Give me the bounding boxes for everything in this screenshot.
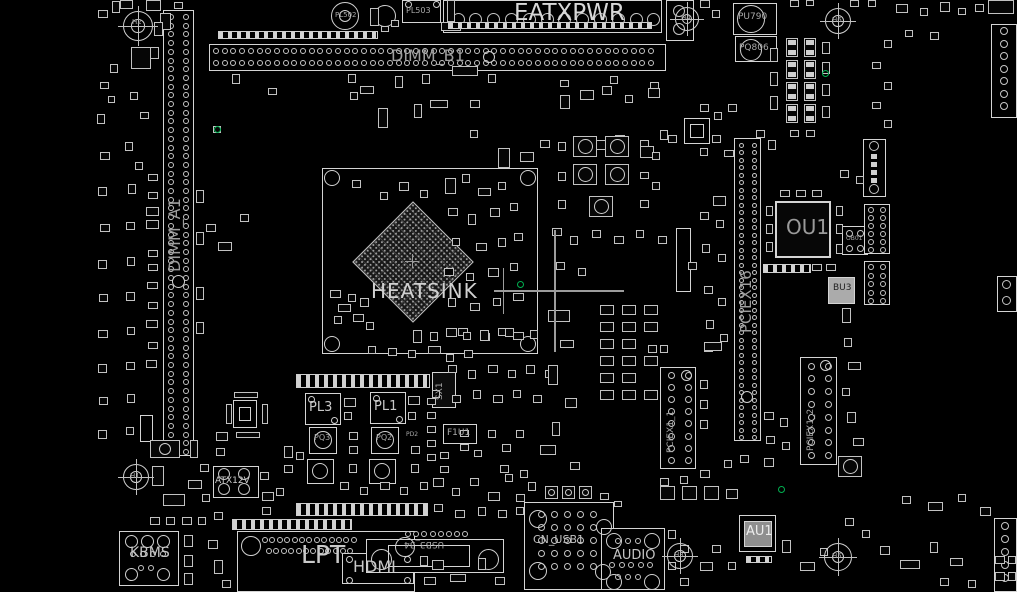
smd-part — [366, 322, 374, 330]
smd-pad — [871, 154, 877, 159]
pin-hole — [335, 48, 341, 54]
smd-part — [700, 104, 709, 112]
smd-part — [700, 148, 708, 156]
pu790-label: PU790 — [738, 13, 767, 22]
pin-hole — [309, 60, 315, 66]
smd-part — [902, 496, 911, 504]
pin-hole — [685, 384, 692, 391]
pin-hole — [590, 537, 597, 544]
au1-label: AU1 — [746, 525, 773, 538]
lpt-label: LPT — [301, 542, 345, 567]
pin-hole — [752, 143, 757, 148]
testpoint-green-dot — [822, 70, 829, 77]
smd-part — [148, 264, 158, 271]
f1u1-label: F1U1 — [447, 429, 470, 438]
smd-part — [712, 135, 721, 143]
smd-pad — [871, 162, 877, 167]
smd-part — [592, 230, 601, 238]
smd-part — [99, 397, 108, 405]
smd-part — [826, 264, 836, 271]
smd-part — [724, 460, 732, 468]
smd-part — [704, 286, 713, 294]
smd-part — [130, 92, 138, 100]
smd-part — [184, 573, 193, 585]
pin-hole — [685, 445, 692, 452]
pin-hole — [739, 428, 744, 433]
smd-part — [652, 152, 660, 160]
smd-part — [427, 426, 436, 433]
pin-hole — [625, 574, 631, 580]
smd-part — [790, 130, 799, 137]
smd-part — [702, 244, 710, 253]
smd-part — [146, 360, 157, 368]
pin-hole — [685, 457, 692, 464]
smd-part — [706, 320, 714, 329]
pin-header[interactable] — [746, 556, 772, 563]
pin-hole — [752, 210, 757, 215]
smd-pad — [806, 106, 814, 111]
pad-circle — [396, 416, 403, 423]
pin-hole — [168, 188, 174, 194]
smd-part — [520, 470, 528, 478]
pin-hole — [577, 563, 584, 570]
smd-part — [148, 174, 158, 181]
smd-part — [712, 10, 720, 18]
smd-part — [284, 446, 293, 458]
smd-part — [652, 182, 660, 190]
pin-hole — [168, 171, 174, 177]
pin-hole — [183, 58, 189, 64]
smd-part — [126, 427, 134, 435]
pin-hole — [570, 60, 576, 66]
pl503-label: PL503 — [406, 7, 431, 15]
pin-hole — [868, 281, 874, 287]
pin-hole — [825, 452, 832, 459]
pin-hole — [808, 363, 815, 370]
smd-part — [1008, 556, 1016, 564]
smd-part — [348, 294, 356, 302]
pin-hole — [739, 405, 744, 410]
smd-part — [540, 140, 550, 148]
smd-part — [498, 148, 510, 168]
pin-hole — [168, 397, 174, 403]
pin-hole — [739, 375, 744, 380]
boardview-canvas[interactable]: EATXPWRDIMM_B1DIMM_A1HEATSINKPCIEX16PCIE… — [0, 0, 1017, 592]
pin-hole — [518, 48, 524, 54]
pcie-aux-rect[interactable] — [676, 228, 691, 292]
smd-part — [198, 517, 206, 525]
smd-part — [610, 76, 618, 84]
smd-part — [644, 305, 658, 315]
smd-part — [488, 492, 500, 501]
smd-part — [770, 72, 778, 86]
pin-hole — [413, 531, 419, 537]
smd-part — [414, 104, 422, 118]
pad-circle — [331, 417, 338, 424]
smd-part — [411, 446, 420, 454]
testpoint-green-dot — [214, 126, 221, 133]
smd-part — [565, 398, 577, 408]
smd-part — [836, 244, 843, 254]
testpoint-green-dot — [778, 486, 785, 493]
smd-part — [840, 170, 849, 178]
smd-part — [570, 236, 578, 245]
dimm-a1-label: DIMM_A1 — [167, 198, 183, 272]
pin-hole — [351, 537, 357, 543]
pin-hole — [454, 531, 460, 537]
smd-part — [411, 464, 419, 473]
smd-part — [600, 373, 614, 383]
smd-part — [147, 282, 158, 289]
smd-part — [513, 390, 521, 398]
pin-hole — [825, 414, 832, 421]
pin-hole — [739, 420, 744, 425]
pin-hole — [564, 550, 571, 557]
smd-part — [513, 332, 524, 340]
smd-part — [368, 346, 376, 354]
smd-part — [682, 486, 697, 500]
smd-part — [498, 182, 506, 190]
smd-part — [100, 82, 109, 89]
smd-part — [704, 486, 719, 500]
smd-part — [622, 356, 636, 366]
smd-part — [112, 1, 120, 13]
pin-hole — [868, 231, 874, 237]
pin-hole — [564, 511, 571, 518]
smd-part — [768, 140, 776, 150]
sx1-label: SX1 — [436, 382, 445, 400]
smd-part — [505, 474, 513, 482]
smd-part — [806, 130, 815, 137]
pin-hole — [183, 145, 189, 151]
smd-part — [660, 130, 668, 140]
smd-part — [470, 478, 479, 486]
qfn-ic-inner[interactable] — [239, 407, 251, 421]
smd-part — [388, 348, 397, 356]
pin-hole — [752, 353, 757, 358]
pin-header[interactable] — [763, 264, 811, 273]
square-ic-684-inner[interactable] — [690, 124, 704, 138]
smd-part — [350, 92, 358, 100]
pin-hole — [474, 48, 480, 54]
pin-hole — [857, 245, 864, 252]
pin-hole — [222, 60, 228, 66]
pad-circle — [241, 536, 261, 556]
pin-hole — [739, 203, 744, 208]
pin-hole — [361, 48, 367, 54]
pin-hole — [551, 524, 558, 531]
pin-hole — [739, 150, 744, 155]
smd-part — [154, 22, 163, 36]
pin-hole — [183, 310, 189, 316]
smd-pad — [806, 94, 814, 99]
pin-hole — [739, 435, 744, 440]
pin-hole — [739, 233, 744, 238]
smd-part — [493, 395, 503, 403]
eatxpwr-label: EATXPWR — [514, 2, 625, 25]
smd-part — [516, 494, 525, 502]
smd-part — [844, 338, 852, 347]
pad-circle — [157, 568, 170, 581]
smd-part — [548, 310, 570, 322]
smd-part — [432, 560, 444, 570]
left-box[interactable] — [140, 415, 153, 442]
smd-part — [842, 308, 851, 323]
pin-hole — [183, 49, 189, 55]
smd-part — [770, 96, 778, 110]
pin-hole — [596, 60, 602, 66]
smd-pad — [788, 106, 796, 111]
smd-part — [560, 340, 574, 348]
pin-hole — [248, 48, 254, 54]
pin-hole — [752, 383, 757, 388]
smd-part — [766, 224, 773, 234]
pin-hole — [648, 60, 654, 66]
smd-part — [614, 236, 624, 244]
smd-part — [728, 562, 736, 570]
smd-part — [464, 350, 473, 358]
smd-part — [470, 130, 478, 138]
pad-circle — [596, 519, 612, 535]
smd-part — [756, 130, 765, 138]
smd-part — [700, 562, 713, 571]
pin-hole — [825, 388, 832, 395]
smd-part — [533, 395, 542, 403]
pad-circle — [374, 463, 390, 479]
smd-part — [184, 535, 193, 547]
pin-hole — [561, 60, 567, 66]
smd-part — [395, 76, 403, 88]
pin-hole — [248, 60, 254, 66]
dimm-b1-label: DIMM_B1 — [391, 48, 465, 64]
pin-hole — [168, 75, 174, 81]
smd-part — [800, 562, 815, 571]
inductor-circle — [582, 489, 589, 496]
smd-part — [349, 432, 358, 440]
pin-hole — [300, 48, 306, 54]
smd-part — [560, 95, 570, 109]
pin-hole — [168, 110, 174, 116]
smd-part — [488, 430, 496, 438]
pin-hole — [880, 239, 886, 245]
bu3-label: BU3 — [833, 284, 852, 293]
pin-hole — [625, 538, 631, 544]
pin-hole — [868, 247, 874, 253]
pad-circle — [404, 577, 411, 584]
smd-part — [940, 2, 950, 12]
pin-hole — [880, 223, 886, 229]
pad-circle — [529, 510, 547, 528]
pin-hole — [880, 264, 886, 270]
smd-part — [720, 334, 728, 342]
smd-part — [408, 396, 420, 405]
smd-pad — [806, 116, 814, 121]
smd-part — [262, 404, 268, 424]
smd-part — [968, 580, 976, 588]
pin-hole — [739, 143, 744, 148]
smd-part — [408, 350, 416, 358]
smd-part — [822, 42, 830, 54]
pin-hole — [605, 48, 611, 54]
pin-hole — [752, 368, 757, 373]
smd-part — [99, 294, 108, 302]
smd-part — [700, 470, 710, 478]
pad-circle — [606, 533, 622, 549]
pin-hole — [635, 574, 641, 580]
smd-part — [853, 438, 864, 446]
pl3-label: PL3 — [309, 401, 332, 414]
pin-hole — [752, 413, 757, 418]
smd-part — [380, 482, 390, 490]
smd-part — [430, 332, 438, 341]
smd-part — [378, 108, 388, 128]
smd-part — [726, 489, 738, 499]
pin-hole — [309, 48, 315, 54]
pin-hole — [564, 563, 571, 570]
smd-part — [648, 88, 660, 98]
pin-hole — [739, 165, 744, 170]
pin-hole — [168, 371, 174, 377]
pad-circle — [125, 568, 138, 581]
smd-part — [98, 10, 108, 18]
smd-part — [146, 220, 159, 229]
hole-h3-label: H3 — [674, 552, 684, 559]
pin-hole — [825, 427, 832, 434]
smd-part — [622, 339, 636, 349]
smd-part — [108, 96, 115, 103]
pin-hole — [168, 362, 174, 368]
smd-part — [660, 345, 668, 353]
smd-part — [782, 540, 791, 553]
smd-part — [444, 268, 454, 276]
smd-part — [408, 412, 416, 420]
smd-part — [452, 66, 478, 76]
pciex16-label: PCIEX16 — [739, 270, 754, 333]
pin-header[interactable] — [296, 374, 430, 388]
pin-header[interactable] — [232, 519, 352, 530]
smd-part — [276, 488, 284, 496]
smd-part — [498, 238, 506, 247]
hole-h6-label: H6 — [832, 17, 842, 24]
smd-part — [540, 445, 556, 455]
smd-part — [349, 446, 358, 454]
smd-pad — [871, 178, 877, 183]
smd-part — [975, 4, 984, 12]
smd-part — [200, 464, 209, 472]
smd-part — [700, 400, 708, 409]
smd-part — [182, 517, 192, 525]
smd-part — [602, 86, 612, 95]
pin-hole — [168, 49, 174, 55]
smd-part — [427, 454, 436, 461]
pin-hole — [868, 273, 874, 279]
pin-hole — [880, 231, 886, 237]
pin-hole — [752, 360, 757, 365]
pad-circle — [820, 360, 831, 371]
smd-part — [552, 422, 560, 436]
pin-header[interactable] — [218, 31, 378, 39]
pin-hole — [183, 423, 189, 429]
smd-part — [474, 450, 482, 457]
pin-hole — [183, 449, 189, 455]
smd-part — [360, 487, 368, 495]
pin-hole — [292, 537, 298, 543]
smd-part — [163, 494, 185, 506]
pin-header[interactable] — [296, 503, 428, 516]
smd-part — [152, 466, 164, 486]
pin-hole — [739, 353, 744, 358]
smd-part — [644, 390, 658, 400]
pin-hole — [551, 511, 558, 518]
pin-hole — [438, 531, 444, 537]
smd-part — [262, 492, 274, 501]
pad-circle — [644, 574, 660, 590]
pin-hole — [868, 223, 874, 229]
smd-part — [226, 404, 232, 424]
pq806-label: PQ806 — [739, 44, 769, 53]
smd-part — [468, 370, 476, 379]
smd-part — [150, 47, 159, 59]
smd-part — [140, 112, 149, 119]
pin-hole — [739, 360, 744, 365]
smd-part — [448, 208, 458, 216]
smd-part — [920, 8, 928, 16]
smd-part — [262, 507, 271, 515]
smd-part — [822, 84, 830, 96]
pin-hole — [880, 298, 886, 304]
smd-part — [872, 62, 881, 69]
smd-part — [600, 390, 614, 400]
pin-hole — [518, 60, 524, 66]
pin-hole — [1001, 535, 1009, 543]
pin-hole — [868, 239, 874, 245]
smd-part — [516, 430, 524, 438]
smd-pad — [788, 94, 796, 99]
smd-part — [135, 162, 143, 170]
pin-hole — [168, 136, 174, 142]
ou1-label: OU1 — [786, 217, 829, 237]
smd-part — [488, 365, 498, 373]
pin-hole — [544, 48, 550, 54]
pin-hole — [739, 210, 744, 215]
pin-hole — [183, 14, 189, 20]
pin-hole — [577, 550, 584, 557]
pin-hole — [168, 310, 174, 316]
pin-hole — [880, 273, 886, 279]
pin-hole — [577, 524, 584, 531]
pin-hole — [266, 548, 272, 554]
smd-part — [208, 540, 218, 549]
smd-part — [498, 510, 507, 518]
pin-hole — [213, 60, 219, 66]
smd-part — [740, 455, 749, 463]
smd-part — [236, 432, 260, 438]
smd-part — [570, 462, 580, 470]
smd-part — [900, 560, 920, 569]
smd-part — [344, 412, 352, 420]
pin-hole — [168, 84, 174, 90]
smd-part — [420, 190, 428, 198]
smd-part — [202, 494, 210, 502]
smd-part — [430, 100, 448, 108]
smd-part — [98, 187, 107, 196]
atx12v-label: ATX12V — [215, 477, 250, 486]
pin-hole — [869, 141, 879, 151]
inductor-circle — [610, 167, 625, 182]
inductor-circle — [594, 199, 609, 214]
pin-hole — [168, 423, 174, 429]
pin-hole — [739, 195, 744, 200]
